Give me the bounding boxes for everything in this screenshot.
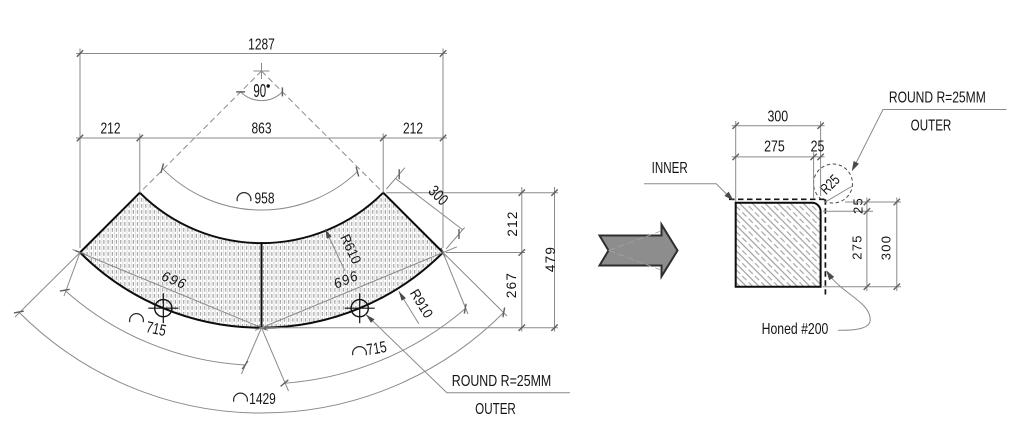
svg-text:INNER: INNER <box>652 159 688 176</box>
svg-text:275: 275 <box>850 234 865 260</box>
svg-text:OUTER: OUTER <box>475 400 516 417</box>
svg-text:ROUND R=25MM: ROUND R=25MM <box>452 372 551 390</box>
svg-text:275: 275 <box>764 137 785 155</box>
svg-text:715: 715 <box>365 337 388 358</box>
svg-text:OUTER: OUTER <box>911 117 952 134</box>
svg-text:715: 715 <box>145 318 168 340</box>
svg-text:300: 300 <box>879 235 894 261</box>
svg-text:Honed #200: Honed #200 <box>762 320 829 338</box>
svg-text:267: 267 <box>504 272 519 298</box>
svg-text:ROUND R=25MM: ROUND R=25MM <box>889 88 986 106</box>
svg-text:R910: R910 <box>407 286 436 320</box>
svg-text:863: 863 <box>251 119 271 137</box>
svg-text:90: 90 <box>253 81 266 101</box>
svg-text:212: 212 <box>505 210 520 236</box>
svg-text:212: 212 <box>100 119 120 137</box>
svg-text:25: 25 <box>811 137 825 155</box>
svg-text:25: 25 <box>851 197 866 214</box>
svg-text:479: 479 <box>543 246 558 272</box>
svg-text:1429: 1429 <box>249 389 276 407</box>
svg-text:1287: 1287 <box>248 35 275 53</box>
svg-text:300: 300 <box>767 107 788 125</box>
svg-text:212: 212 <box>403 119 423 137</box>
svg-text:958: 958 <box>254 189 274 207</box>
